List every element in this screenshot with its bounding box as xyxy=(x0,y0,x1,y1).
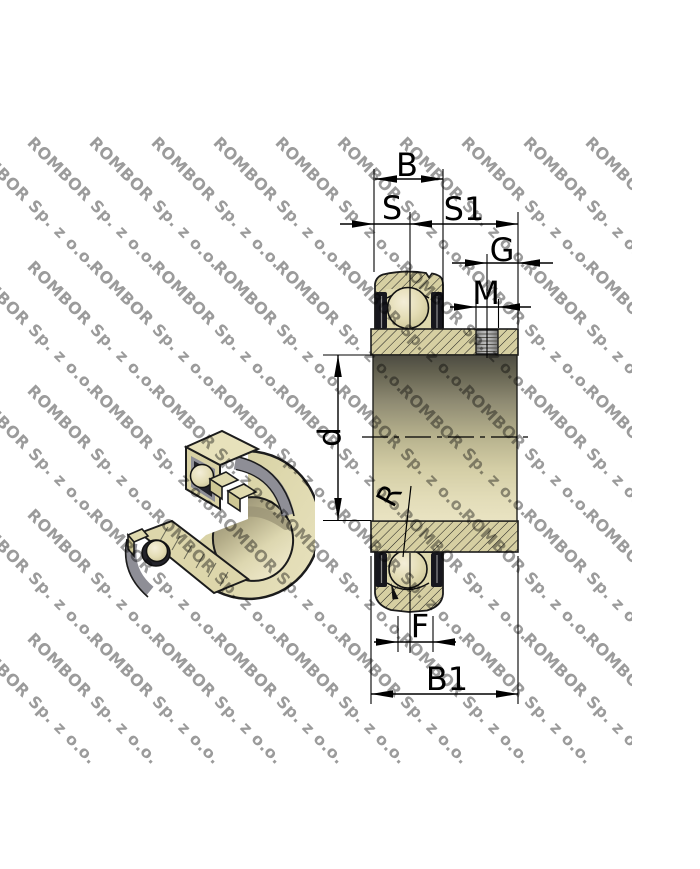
outer-ring-bottom-section xyxy=(375,550,443,612)
label-d: d xyxy=(312,427,348,447)
drawing-canvas: B S S1 G M d R F B1 xyxy=(0,0,700,869)
inner-ring-bottom-band xyxy=(371,521,518,552)
outer-ring-top-section xyxy=(375,272,443,329)
ball-bottom xyxy=(389,550,427,588)
label-G: G xyxy=(490,231,515,269)
ball-3d-bottom xyxy=(147,541,168,562)
ball-top xyxy=(388,288,429,329)
label-B1: B1 xyxy=(426,660,468,698)
section-drawing: B S S1 G M d R F B1 xyxy=(0,0,700,869)
label-B: B xyxy=(396,146,418,184)
label-M: M xyxy=(472,274,500,312)
bearing-3d-illustration xyxy=(110,423,315,623)
label-S1: S1 xyxy=(444,190,485,228)
label-S: S xyxy=(382,189,402,227)
label-F: F xyxy=(411,607,429,645)
